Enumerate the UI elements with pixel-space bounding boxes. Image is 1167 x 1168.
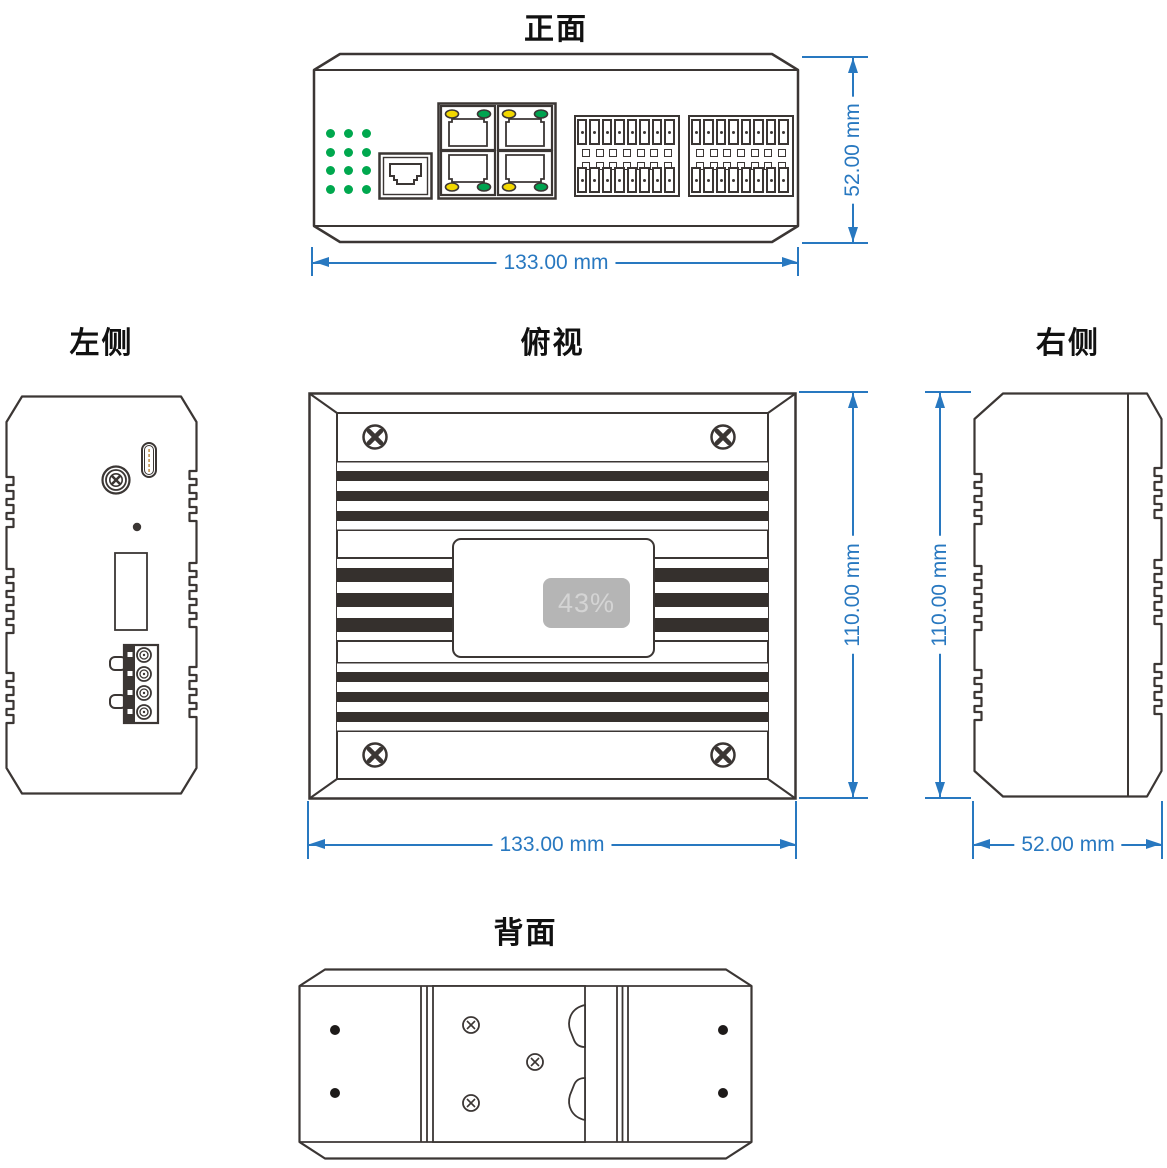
terminal-pin [614, 167, 624, 193]
dim-ext-line [925, 797, 971, 799]
terminal-pin [627, 119, 637, 145]
status-led [326, 185, 335, 194]
dim-ext-line [1161, 801, 1163, 859]
dim-arrow [848, 58, 858, 73]
terminal-square [696, 149, 704, 157]
torx-screw [103, 467, 130, 494]
terminal-square [710, 149, 718, 157]
dim-ext-line [972, 801, 974, 859]
dim-arrow [848, 782, 858, 797]
terminal-pin [602, 167, 612, 193]
status-led [326, 148, 335, 157]
right-side-outline-svg [973, 392, 1163, 798]
terminal-pin [703, 167, 713, 193]
green-led-icon [478, 183, 491, 191]
status-led [344, 185, 353, 194]
terminal-block-1 [574, 115, 680, 197]
mechanical-drawing-sheet: 正面 左侧 俯视 右侧 背面 [0, 0, 1167, 1168]
dim-arrow [935, 393, 945, 408]
ethernet-port-block [437, 102, 557, 200]
terminal-pin [753, 119, 763, 145]
terminal-pin [652, 167, 662, 193]
dim-arrow [310, 839, 325, 849]
terminal-square-row [582, 149, 672, 157]
status-led [362, 129, 371, 138]
status-led [326, 166, 335, 175]
back-outline-svg [298, 968, 753, 1160]
terminal-square [609, 149, 617, 157]
terminal-square [737, 149, 745, 157]
terminal-square-row [696, 149, 786, 157]
terminal-square [723, 149, 731, 157]
top-view: 43% [308, 392, 797, 800]
terminal-pin [741, 167, 751, 193]
dim-label-front-width: 133.00 mm [496, 251, 615, 275]
green-led-icon [535, 183, 548, 191]
terminal-block-2 [688, 115, 794, 197]
dim-ext-line [307, 801, 309, 859]
terminal-pin [691, 119, 701, 145]
dim-arrow [782, 257, 797, 267]
terminal-pin [703, 119, 713, 145]
terminal-pin [577, 167, 587, 193]
dim-label-right-width: 52.00 mm [1014, 833, 1121, 857]
lan-port [498, 151, 552, 195]
status-led [362, 166, 371, 175]
front-view-title: 正面 [312, 4, 800, 48]
terminal-pin [664, 167, 674, 193]
dim-arrow [975, 839, 990, 849]
dim-ext-line [925, 391, 971, 393]
percent-text: 43% [558, 588, 615, 619]
status-led [326, 129, 335, 138]
sim-slot [115, 553, 147, 630]
corner-screw-bottom-left [364, 744, 387, 767]
terminal-pin [577, 119, 587, 145]
terminal-pin [614, 119, 624, 145]
terminal-pin [627, 167, 637, 193]
terminal-pin [728, 119, 738, 145]
terminal-pin [766, 167, 776, 193]
usb-port [142, 443, 156, 477]
terminal-square [623, 149, 631, 157]
corner-screw-top-right [712, 426, 735, 449]
terminal-pin [589, 119, 599, 145]
dim-arrow [848, 393, 858, 408]
right-view-title: 右侧 [973, 318, 1163, 362]
lan-port [441, 106, 495, 150]
terminal-pin [691, 167, 701, 193]
status-led [344, 129, 353, 138]
terminal-pin [728, 167, 738, 193]
back-view [298, 968, 753, 1160]
dim-ext-line [799, 391, 868, 393]
lan-port [498, 106, 552, 150]
terminal-pin [766, 119, 776, 145]
right-enclosure-outline [975, 394, 1162, 797]
terminal-pin [602, 119, 612, 145]
dim-label-top-height: 110.00 mm [841, 536, 865, 654]
dim-ext-line [802, 56, 868, 58]
terminal-square [764, 149, 772, 157]
terminal-square [582, 149, 590, 157]
back-view-title: 背面 [298, 908, 753, 952]
dim-ext-line [795, 801, 797, 859]
lan-port [441, 151, 495, 195]
dim-arrow [780, 839, 795, 849]
label-plate: 43% [452, 538, 655, 658]
terminal-pin [716, 167, 726, 193]
terminal-pin-row [577, 167, 675, 193]
din-mount-plate [433, 986, 585, 1142]
terminal-square [664, 149, 672, 157]
heatsink-fin-group-bottom [337, 662, 768, 732]
terminal-square [637, 149, 645, 157]
left-view-title: 左侧 [5, 318, 198, 362]
terminal-pin [664, 119, 674, 145]
dim-label-top-width: 133.00 mm [492, 833, 611, 857]
dim-arrow [935, 782, 945, 797]
reset-pinhole [133, 523, 141, 531]
terminal-square [596, 149, 604, 157]
left-side-view [5, 395, 198, 795]
terminal-pin-row [691, 119, 789, 145]
dim-label-right-height: 110.00 mm [928, 536, 952, 654]
yellow-led-icon [446, 110, 459, 118]
terminal-pin [639, 119, 649, 145]
top-view-title: 俯视 [308, 318, 797, 362]
dim-arrow [1146, 839, 1161, 849]
dim-ext-line [799, 797, 868, 799]
terminal-pin [589, 167, 599, 193]
terminal-square [751, 149, 759, 157]
terminal-pin [778, 167, 788, 193]
yellow-led-icon [503, 183, 516, 191]
status-led [362, 185, 371, 194]
terminal-pin [652, 119, 662, 145]
heatsink-fin-group-top [337, 461, 768, 531]
console-port [378, 152, 433, 200]
status-led [344, 148, 353, 157]
screen-percent-overlay: 43% [543, 578, 630, 628]
green-led-icon [535, 110, 548, 118]
terminal-square [650, 149, 658, 157]
terminal-square [778, 149, 786, 157]
terminal-pin [741, 119, 751, 145]
terminal-pin [639, 167, 649, 193]
green-led-icon [478, 110, 491, 118]
terminal-pin-row [691, 167, 789, 193]
status-led-grid [326, 129, 371, 194]
dim-arrow [314, 257, 329, 267]
status-led [344, 166, 353, 175]
dim-arrow [848, 227, 858, 242]
left-enclosure-outline [7, 397, 197, 794]
terminal-pin [716, 119, 726, 145]
dim-ext-line [802, 242, 868, 244]
terminal-pin [753, 167, 763, 193]
right-side-view [973, 392, 1163, 798]
yellow-led-icon [446, 183, 459, 191]
corner-screw-bottom-right [712, 744, 735, 767]
yellow-led-icon [503, 110, 516, 118]
terminal-pin [778, 119, 788, 145]
terminal-pin-row [577, 119, 675, 145]
status-led [362, 148, 371, 157]
left-side-outline-svg [5, 395, 198, 795]
dim-label-front-height: 52.00 mm [841, 96, 865, 203]
front-view [312, 52, 800, 244]
corner-screw-top-left [364, 426, 387, 449]
